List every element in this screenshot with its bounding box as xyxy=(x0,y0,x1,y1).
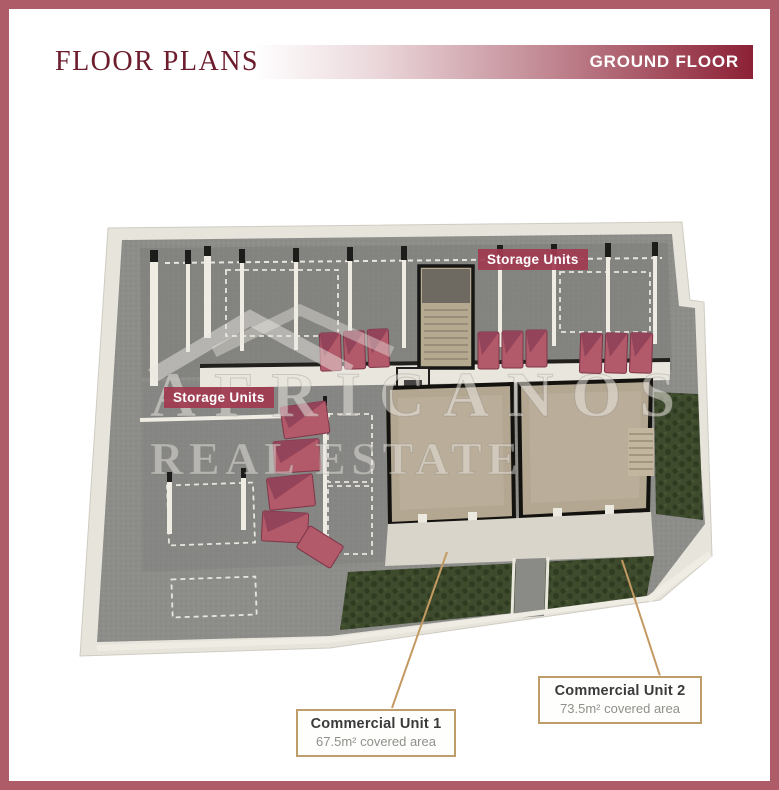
storage-units-label-top: Storage Units xyxy=(478,249,588,270)
floor-plan-canvas: AFRICANOS REAL ESTATE Storage Units Stor… xyxy=(9,9,770,781)
commercial-unit-2-area: 73.5m² covered area xyxy=(546,701,694,716)
floor-plan-rendering: AFRICANOS REAL ESTATE xyxy=(9,9,770,781)
commercial-unit-1-name: Commercial Unit 1 xyxy=(304,716,448,732)
commercial-unit-1-card: Commercial Unit 1 67.5m² covered area xyxy=(296,709,456,757)
stairwell xyxy=(419,266,473,368)
commercial-unit-2-card: Commercial Unit 2 73.5m² covered area xyxy=(538,676,702,724)
floor-plan-page: { "header": { "title": "FLOOR PLANS", "f… xyxy=(0,0,779,790)
commercial-unit-2-name: Commercial Unit 2 xyxy=(546,683,694,699)
commercial-unit-1-area: 67.5m² covered area xyxy=(304,734,448,749)
watermark-line2: REAL ESTATE xyxy=(150,433,518,484)
storage-units-label-left: Storage Units xyxy=(164,387,274,408)
